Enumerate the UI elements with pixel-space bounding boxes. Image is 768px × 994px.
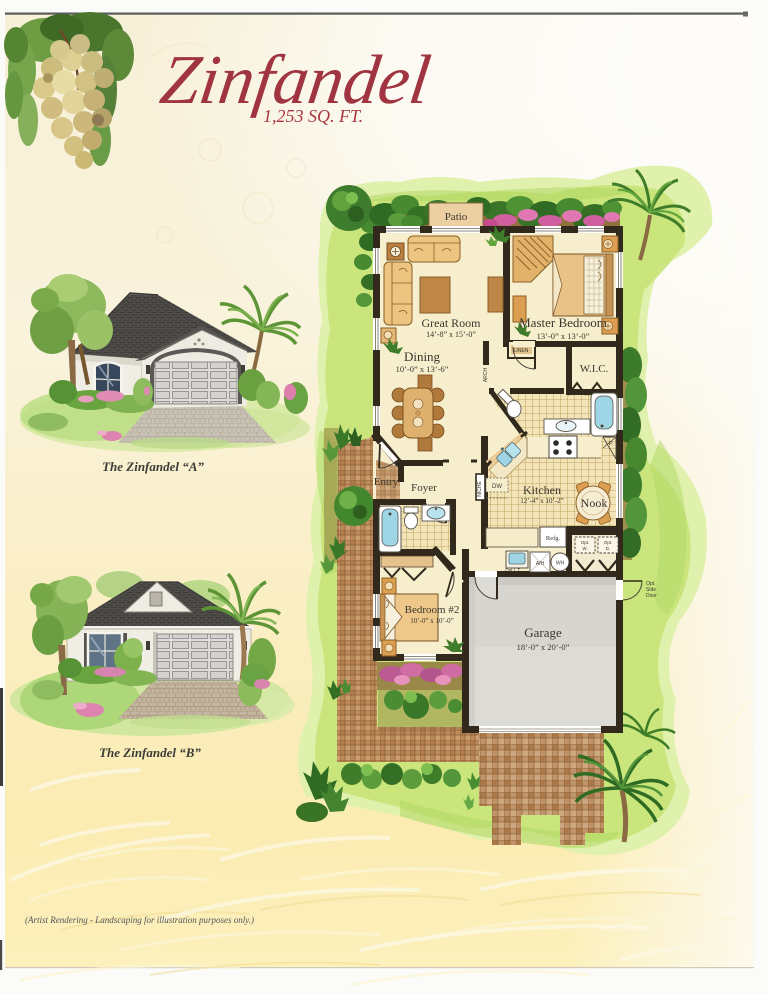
svg-text:Entry: Entry xyxy=(374,476,399,488)
svg-text:14’-8” x 15’-0”: 14’-8” x 15’-0” xyxy=(426,330,476,339)
svg-text:Master Bedroom: Master Bedroom xyxy=(519,315,607,330)
svg-text:Nook: Nook xyxy=(581,496,608,510)
svg-text:W.: W. xyxy=(582,546,587,551)
svg-text:W.I.C.: W.I.C. xyxy=(580,363,609,375)
svg-text:ARCH: ARCH xyxy=(483,368,489,383)
svg-text:Kitchen: Kitchen xyxy=(523,483,561,497)
svg-text:Opt.L.T.: Opt.L.T. xyxy=(505,568,521,573)
svg-text:P.: P. xyxy=(609,441,614,447)
svg-text:1,253 SQ. FT.: 1,253 SQ. FT. xyxy=(263,106,363,126)
svg-text:Great Room: Great Room xyxy=(422,316,482,330)
svg-text:Foyer: Foyer xyxy=(411,482,437,494)
svg-text:The Zinfandel “B”: The Zinfandel “B” xyxy=(99,745,201,760)
svg-text:Dining: Dining xyxy=(404,349,441,364)
svg-text:Patio: Patio xyxy=(445,211,468,223)
svg-text:D.: D. xyxy=(606,546,611,551)
svg-text:Opt.: Opt. xyxy=(604,540,613,545)
svg-text:13’-0” x 13’-0”: 13’-0” x 13’-0” xyxy=(537,331,590,341)
svg-text:18’-0” x 20’-0”: 18’-0” x 20’-0” xyxy=(517,642,570,652)
svg-text:WH: WH xyxy=(556,561,565,567)
svg-text:Garage: Garage xyxy=(524,625,562,640)
svg-text:A/H: A/H xyxy=(536,561,545,567)
svg-text:Door: Door xyxy=(646,593,657,599)
svg-text:DW: DW xyxy=(492,484,502,490)
svg-text:Bedroom #2: Bedroom #2 xyxy=(405,604,460,616)
svg-text:10’-0” x 13’-6”: 10’-0” x 13’-6” xyxy=(396,364,449,374)
svg-text:Refg.: Refg. xyxy=(546,535,561,542)
svg-text:The Zinfandel “A”: The Zinfandel “A” xyxy=(102,459,204,474)
svg-text:12’-4” x 10’-2”: 12’-4” x 10’-2” xyxy=(520,497,564,505)
svg-text:Opt.: Opt. xyxy=(581,540,590,545)
svg-text:(Artist Rendering - Landscapin: (Artist Rendering - Landscaping for illu… xyxy=(25,915,254,925)
svg-text:10’-0” x 10’-0”: 10’-0” x 10’-0” xyxy=(410,617,454,625)
svg-text:NICHE: NICHE xyxy=(477,481,483,497)
svg-text:LINEN: LINEN xyxy=(514,348,529,354)
